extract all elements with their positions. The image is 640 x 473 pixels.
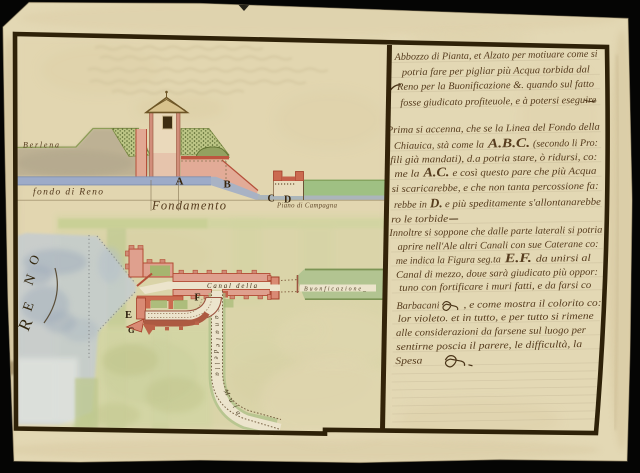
svg-text:A: A: [176, 176, 184, 188]
svg-text:F: F: [195, 293, 201, 304]
svg-text:C: C: [268, 194, 275, 205]
svg-text:, e come mostra il colorito co: , e come mostra il colorito co:: [463, 298, 601, 311]
svg-text:G: G: [128, 325, 135, 335]
svg-text:A.C.: A.C.: [422, 164, 449, 179]
svg-text:me indica la Figura seg.ta: me indica la Figura seg.ta: [396, 254, 501, 267]
svg-text:da unirsi al: da unirsi al: [536, 253, 591, 265]
svg-text:me la: me la: [394, 169, 419, 180]
svg-text:e così questo pare che più Acq: e così questo pare che più Acqua: [452, 166, 596, 179]
svg-text:E.F.: E.F.: [503, 250, 531, 265]
svg-text:E: E: [125, 310, 132, 321]
svg-text:Chiauica, stà come la: Chiauica, stà come la: [394, 140, 484, 152]
svg-text:A.B.C.: A.B.C.: [487, 135, 530, 151]
svg-text:Fondamento: Fondamento: [151, 199, 226, 213]
svg-text:Barbacani: Barbacani: [396, 300, 439, 312]
svg-text:B: B: [224, 179, 232, 191]
svg-text:D.: D.: [429, 195, 443, 210]
svg-text:(secondo li Pro:: (secondo li Pro:: [533, 138, 598, 150]
svg-text:Spesa: Spesa: [395, 356, 422, 367]
svg-text:rebbe in: rebbe in: [394, 199, 427, 211]
svg-text:Canal della: Canal della: [207, 283, 258, 290]
svg-text:fondo di Reno: fondo di Reno: [33, 187, 103, 198]
svg-text:Piano di Campagna: Piano di Campagna: [276, 203, 338, 210]
svg-text:ro le torbide: ro le torbide: [391, 214, 449, 226]
